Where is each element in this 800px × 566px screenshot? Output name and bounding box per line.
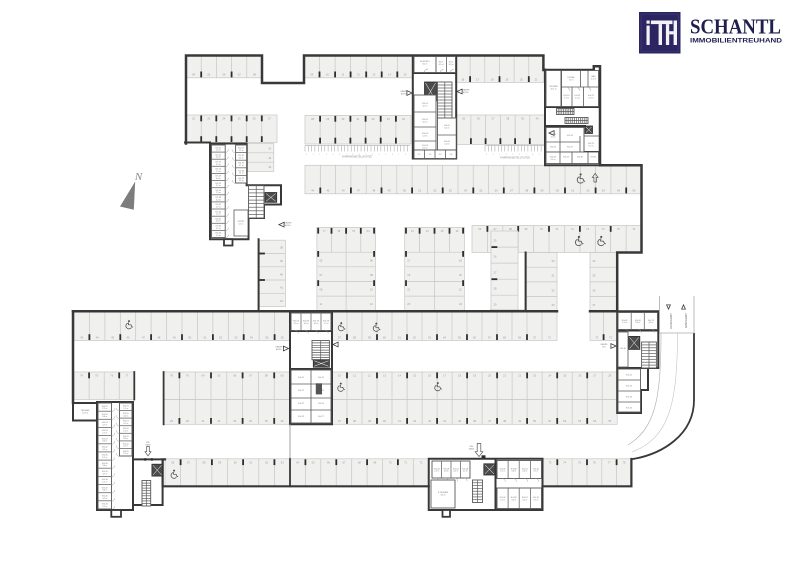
svg-text:0: 0: [539, 154, 540, 156]
svg-text:12,6 m: 12,6 m: [82, 413, 88, 415]
svg-text:3,4 m: 3,4 m: [102, 441, 107, 443]
svg-text:5: 5: [385, 154, 386, 156]
svg-text:2,1 m: 2,1 m: [622, 322, 627, 324]
svg-text:5,2 m: 5,2 m: [445, 143, 450, 145]
svg-text:KG.24: KG.24: [318, 377, 325, 379]
svg-text:2,1 m: 2,1 m: [216, 192, 221, 194]
svg-text:KG.27: KG.27: [567, 147, 574, 149]
svg-text:4,7 m: 4,7 m: [123, 423, 128, 425]
svg-text:KG.32: KG.32: [626, 386, 633, 388]
svg-text:4: 4: [332, 154, 333, 156]
svg-text:1: 1: [313, 154, 314, 156]
svg-text:6: 6: [392, 154, 393, 156]
svg-text:2,1 m: 2,1 m: [239, 150, 244, 152]
svg-text:4,7 m: 4,7 m: [216, 228, 221, 230]
svg-text:2: 2: [499, 154, 500, 156]
svg-text:4,5 m: 4,5 m: [522, 499, 527, 501]
svg-text:4,5 m: 4,5 m: [453, 471, 458, 473]
svg-text:2,1 m: 2,1 m: [123, 453, 128, 455]
svg-text:7,5 m: 7,5 m: [551, 136, 556, 138]
svg-text:FAHRRADABSTELLPLÄTZE: FAHRRADABSTELLPLÄTZE: [342, 156, 372, 159]
svg-text:3,4 m: 3,4 m: [102, 416, 107, 418]
svg-text:2,1 m: 2,1 m: [123, 408, 128, 410]
svg-text:2,7 m: 2,7 m: [534, 471, 539, 473]
svg-text:2,1 m: 2,1 m: [102, 482, 107, 484]
svg-text:IMMOBILIENTREUHAND: IMMOBILIENTREUHAND: [690, 38, 783, 45]
svg-text:3: 3: [372, 154, 373, 156]
svg-text:3,4 m: 3,4 m: [123, 438, 128, 440]
svg-text:EINFAHRT: EINFAHRT: [684, 313, 688, 328]
svg-text:3: 3: [326, 154, 327, 156]
svg-text:7,1 m: 7,1 m: [569, 79, 574, 81]
svg-text:9,1 m: 9,1 m: [551, 159, 556, 161]
svg-text:3,2 m: 3,2 m: [449, 64, 454, 66]
svg-text:8,2 m: 8,2 m: [423, 64, 428, 66]
svg-text:3: 3: [506, 154, 507, 156]
svg-text:4,7 m: 4,7 m: [102, 449, 107, 451]
svg-text:4: 4: [379, 154, 380, 156]
svg-text:5,4: 5,4: [450, 154, 453, 156]
svg-text:KG.20: KG.20: [298, 377, 305, 379]
svg-text:KG.30: KG.30: [620, 348, 625, 350]
svg-text:KG.22: KG.22: [298, 403, 305, 405]
svg-text:3,7 m: 3,7 m: [564, 97, 569, 99]
svg-text:2,1 m: 2,1 m: [216, 171, 221, 173]
svg-text:6: 6: [339, 154, 340, 156]
svg-text:8: 8: [532, 154, 533, 156]
svg-text:7: 7: [526, 154, 527, 156]
svg-text:4,7 m: 4,7 m: [102, 473, 107, 475]
svg-text:SCHANTL: SCHANTL: [690, 15, 781, 39]
svg-text:2,1: 2,1: [418, 154, 421, 156]
svg-text:4,2 m: 4,2 m: [591, 78, 596, 80]
svg-text:2,1 m: 2,1 m: [239, 173, 244, 175]
svg-text:0: 0: [405, 154, 406, 156]
svg-text:3,2: 3,2: [429, 154, 432, 156]
svg-text:GANG: GANG: [469, 447, 475, 450]
svg-text:6: 6: [519, 154, 520, 156]
svg-text:9,4 m: 9,4 m: [441, 494, 446, 496]
svg-text:2,1 m: 2,1 m: [216, 150, 221, 152]
svg-text:4,1 m: 4,1 m: [439, 64, 444, 66]
svg-text:3,3 m: 3,3 m: [304, 323, 309, 325]
svg-text:15%: 15%: [602, 346, 606, 348]
svg-text:KG.23: KG.23: [298, 416, 305, 418]
svg-text:KG.34: KG.34: [626, 408, 633, 410]
svg-text:10,2 m: 10,2 m: [551, 88, 557, 90]
svg-text:KG.31: KG.31: [591, 157, 598, 159]
svg-text:2,1 m: 2,1 m: [294, 323, 299, 325]
svg-text:3,3 m: 3,3 m: [635, 322, 640, 324]
svg-text:3,3 m: 3,3 m: [511, 471, 516, 473]
svg-text:3,4 m: 3,4 m: [216, 157, 221, 159]
svg-text:4: 4: [512, 154, 513, 156]
svg-text:3,1 m: 3,1 m: [423, 105, 428, 107]
svg-text:3,4 m: 3,4 m: [102, 490, 107, 492]
svg-text:KG.26: KG.26: [550, 147, 557, 149]
svg-text:4,5 m: 4,5 m: [522, 471, 527, 473]
svg-text:2,1 m: 2,1 m: [102, 506, 107, 508]
svg-text:3,3 m: 3,3 m: [511, 499, 516, 501]
svg-text:KG.26: KG.26: [318, 403, 325, 405]
svg-text:KG.33: KG.33: [626, 397, 633, 399]
svg-text:2,1 m: 2,1 m: [102, 408, 107, 410]
svg-text:2,1 m: 2,1 m: [216, 214, 221, 216]
svg-text:0: 0: [306, 154, 307, 156]
svg-text:2,1 m: 2,1 m: [434, 471, 439, 473]
svg-text:3,4 m: 3,4 m: [216, 199, 221, 201]
svg-text:2,1 m: 2,1 m: [102, 457, 107, 459]
svg-text:AUSFAHRT: AUSFAHRT: [669, 313, 673, 329]
svg-text:KG.31: KG.31: [626, 375, 633, 377]
svg-text:2,7 m: 2,7 m: [324, 323, 329, 325]
svg-text:4,7 m: 4,7 m: [123, 446, 128, 448]
svg-text:2: 2: [319, 154, 320, 156]
svg-text:6,1 m: 6,1 m: [445, 127, 450, 129]
svg-text:N: N: [134, 171, 143, 183]
svg-text:2,7 m: 2,7 m: [463, 471, 468, 473]
svg-text:AUSG.: AUSG.: [463, 91, 469, 94]
svg-text:4,7 m: 4,7 m: [102, 424, 107, 426]
svg-text:4,7 m: 4,7 m: [216, 164, 221, 166]
svg-text:5,9 m: 5,9 m: [589, 97, 594, 99]
svg-text:KG.30: KG.30: [577, 157, 584, 159]
svg-text:2,7 m: 2,7 m: [534, 499, 539, 501]
svg-text:3,4 m: 3,4 m: [216, 221, 221, 223]
svg-text:3,3 m: 3,3 m: [444, 471, 449, 473]
svg-text:3,4 m: 3,4 m: [102, 465, 107, 467]
svg-text:2,1 m: 2,1 m: [500, 471, 505, 473]
svg-text:2,1 m: 2,1 m: [123, 431, 128, 433]
svg-text:KG.27: KG.27: [318, 416, 325, 418]
svg-text:7: 7: [398, 154, 399, 156]
svg-text:4,3: 4,3: [439, 154, 442, 156]
svg-text:5,3 m: 5,3 m: [423, 135, 428, 137]
svg-text:3,4 m: 3,4 m: [239, 157, 244, 159]
svg-text:3,4 m: 3,4 m: [123, 415, 128, 417]
svg-text:4,5 m: 4,5 m: [649, 322, 654, 324]
svg-text:2,1 m: 2,1 m: [102, 433, 107, 435]
svg-text:5,1 m: 5,1 m: [239, 223, 244, 225]
svg-text:4,2 m: 4,2 m: [423, 121, 428, 123]
svg-text:4,7 m: 4,7 m: [216, 185, 221, 187]
svg-text:2,1 m: 2,1 m: [500, 499, 505, 501]
svg-text:4,5 m: 4,5 m: [314, 323, 319, 325]
svg-text:3,4 m: 3,4 m: [216, 178, 221, 180]
svg-text:KG.21: KG.21: [298, 390, 305, 392]
svg-text:1: 1: [493, 154, 494, 156]
svg-text:4,7 m: 4,7 m: [216, 207, 221, 209]
svg-text:KG.29: KG.29: [563, 157, 570, 159]
svg-text:4,7 m: 4,7 m: [102, 498, 107, 500]
svg-text:4,7 m: 4,7 m: [239, 165, 244, 167]
svg-text:3,4 m: 3,4 m: [239, 180, 244, 182]
svg-text:AUSG.: AUSG.: [401, 92, 407, 95]
svg-text:AUSG.: AUSG.: [285, 224, 291, 227]
svg-text:0: 0: [486, 154, 487, 156]
svg-text:2,1 m: 2,1 m: [216, 235, 221, 237]
svg-text:3,2 m: 3,2 m: [575, 97, 580, 99]
svg-text:AUSG.: AUSG.: [276, 348, 282, 351]
svg-text:KG.24: KG.24: [567, 135, 574, 137]
svg-text:6,7 m: 6,7 m: [589, 145, 594, 147]
svg-text:FAHRRADABSTELLPLÄTZE: FAHRRADABSTELLPLÄTZE: [500, 157, 530, 160]
svg-text:6,4 m: 6,4 m: [423, 147, 428, 149]
svg-text:GANG: GANG: [145, 443, 151, 446]
